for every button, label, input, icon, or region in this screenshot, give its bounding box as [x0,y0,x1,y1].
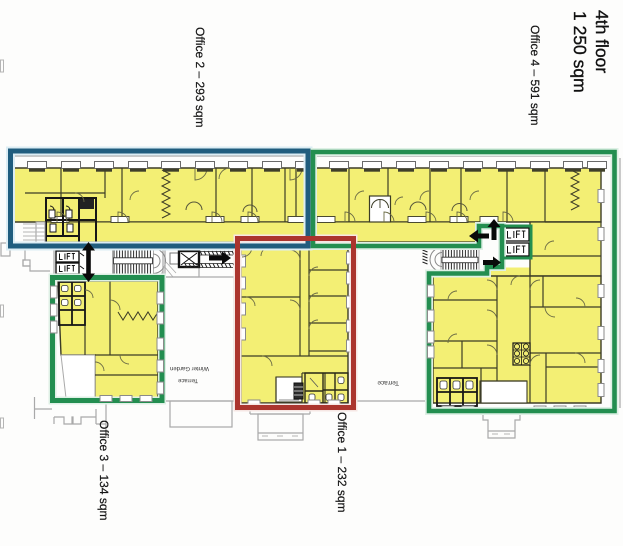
svg-text:Terrace: Terrace [177,377,198,384]
svg-text:Office 3 – 134 sqm: Office 3 – 134 sqm [97,420,111,521]
svg-text:Office 2 – 293 sqm: Office 2 – 293 sqm [193,27,207,128]
svg-text:Office 4 – 591 sqm: Office 4 – 591 sqm [528,25,542,126]
svg-text:4th floor: 4th floor [592,10,612,73]
svg-text:1 250 sqm: 1 250 sqm [570,11,590,93]
svg-text:Winter Garden: Winter Garden [170,365,209,372]
svg-text:Terrace: Terrace [377,379,399,386]
svg-text:Office 1 – 232 sqm: Office 1 – 232 sqm [335,412,349,513]
